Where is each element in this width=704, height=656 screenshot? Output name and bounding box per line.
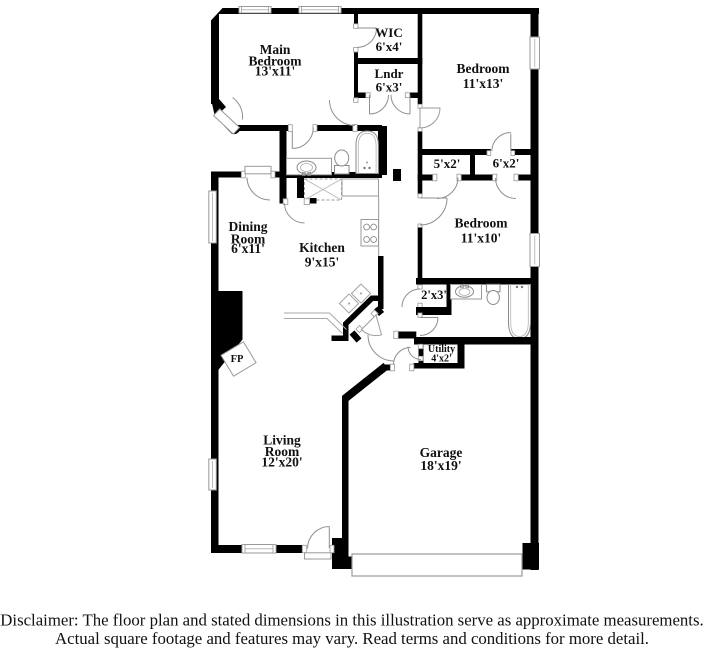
svg-text:Actual square footage and feat: Actual square footage and features may v… xyxy=(55,629,649,648)
svg-text:6'x2': 6'x2' xyxy=(493,156,520,171)
svg-text:Bedroom: Bedroom xyxy=(455,216,509,231)
svg-text:FP: FP xyxy=(231,354,244,365)
svg-text:Bedroom: Bedroom xyxy=(457,61,511,76)
svg-text:6'x4': 6'x4' xyxy=(376,39,403,54)
svg-text:12'x20': 12'x20' xyxy=(261,455,302,470)
svg-text:9'x15': 9'x15' xyxy=(305,255,340,270)
svg-text:2'x3': 2'x3' xyxy=(421,288,447,302)
svg-text:6'x11': 6'x11' xyxy=(231,241,265,256)
svg-text:Disclaimer: The floor plan and: Disclaimer: The floor plan and stated di… xyxy=(0,611,703,630)
svg-text:4'x2': 4'x2' xyxy=(431,354,452,365)
svg-text:11'x10': 11'x10' xyxy=(461,231,502,246)
svg-text:WIC: WIC xyxy=(375,25,402,40)
svg-text:11'x13': 11'x13' xyxy=(463,76,504,91)
svg-text:18'x19': 18'x19' xyxy=(420,458,461,473)
svg-text:5'x2': 5'x2' xyxy=(434,156,461,171)
svg-text:6'x3': 6'x3' xyxy=(376,80,403,95)
svg-text:Kitchen: Kitchen xyxy=(299,240,345,255)
svg-text:13'x11': 13'x11' xyxy=(255,64,296,79)
